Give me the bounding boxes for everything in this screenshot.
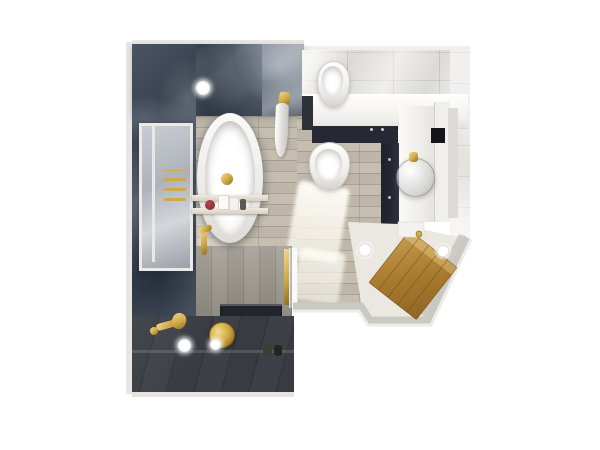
cabinet-handle-2 — [388, 196, 391, 199]
black-accessory — [431, 128, 445, 143]
wall-outer-bottom — [132, 392, 294, 397]
downlight-door — [437, 245, 449, 257]
downlight-floor — [359, 244, 371, 256]
mirror-panel-edge — [448, 108, 458, 218]
caddy-rose — [205, 200, 215, 210]
bidet-bowl — [322, 66, 343, 96]
shower-valve — [150, 327, 158, 335]
toiletry-bottle-1 — [263, 344, 272, 356]
tub-drain — [221, 173, 233, 185]
counter-side-edge — [302, 96, 313, 130]
caddy-candle-1 — [218, 195, 229, 210]
toilet-bowl — [315, 149, 342, 181]
downlight-shower-2 — [210, 339, 221, 350]
entry-zone — [280, 212, 480, 342]
vessel-sink-glass — [396, 158, 435, 197]
cabinet-handle-1 — [388, 158, 391, 161]
apron-dot-2 — [381, 128, 384, 131]
marble-sheen-arc — [214, 44, 304, 116]
caddy-candle-2 — [229, 197, 239, 211]
window-mullion — [152, 126, 155, 262]
downlight-entry-wall — [196, 81, 210, 95]
downlight-shower-1 — [178, 339, 191, 352]
apron-dot-1 — [370, 128, 373, 131]
toiletry-bottle-2 — [274, 345, 282, 356]
sink-faucet — [409, 152, 418, 162]
towel-warmer — [164, 170, 186, 208]
door-handle — [416, 231, 422, 237]
bathroom-floorplan-render — [0, 0, 600, 450]
counter-apron-navy — [312, 126, 398, 143]
caddy-bottle — [240, 199, 246, 210]
